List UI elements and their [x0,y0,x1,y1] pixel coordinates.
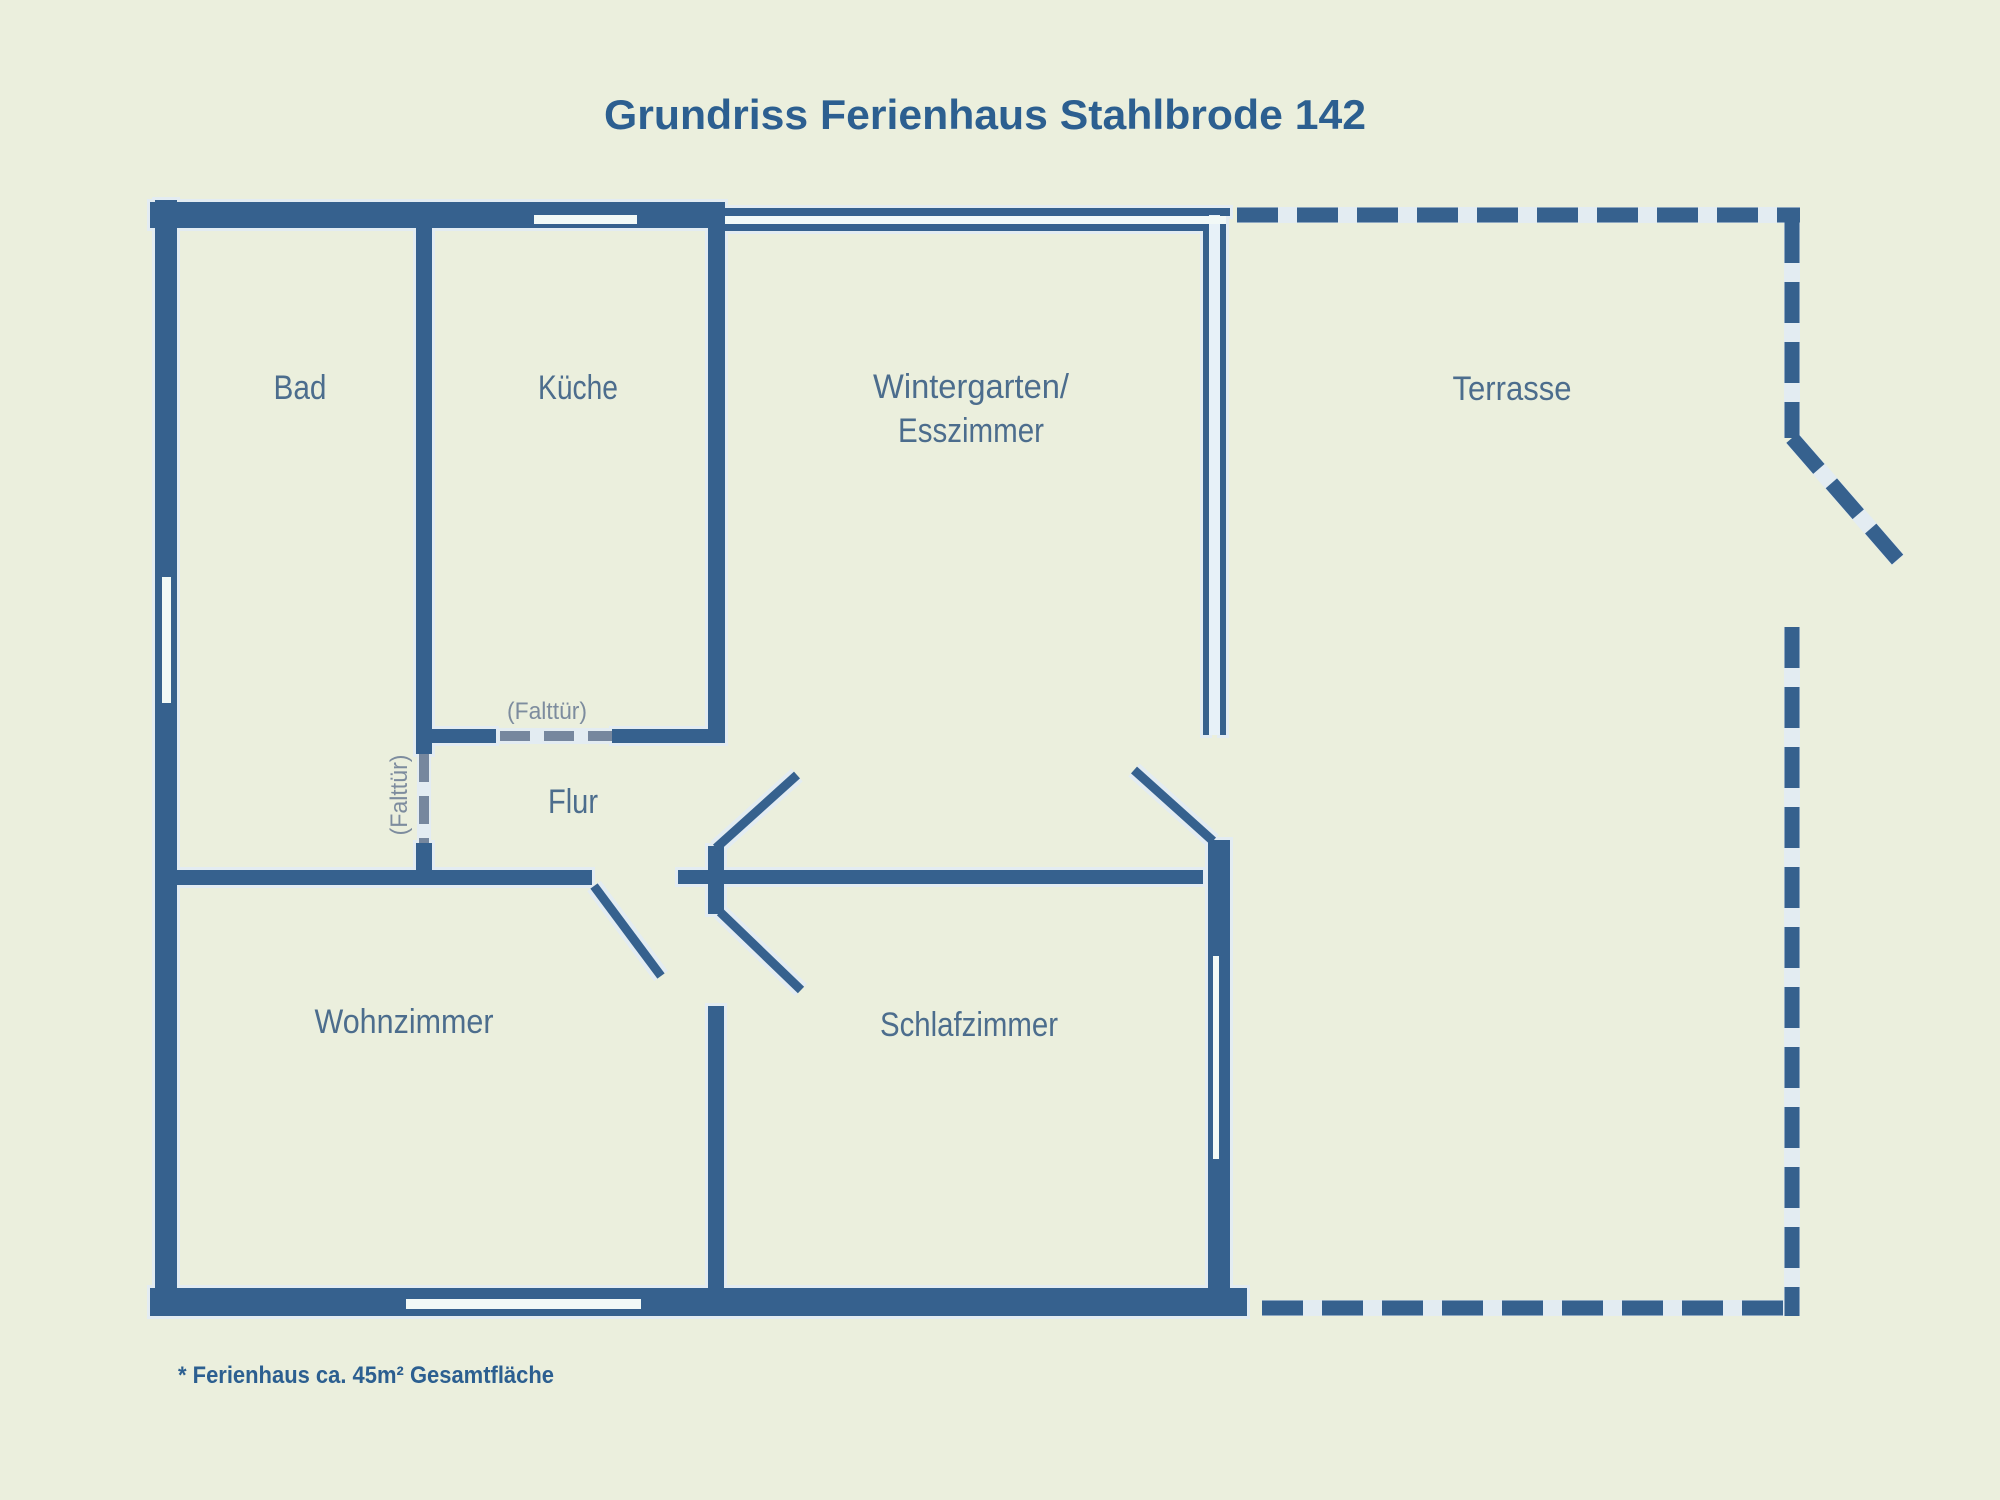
svg-text:Schlafzimmer: Schlafzimmer [880,1006,1058,1044]
svg-text:Wintergarten/: Wintergarten/ [873,368,1070,406]
svg-text:Küche: Küche [538,369,618,407]
svg-text:* Ferienhaus ca. 45m² Gesamtfl: * Ferienhaus ca. 45m² Gesamtfläche [178,1362,554,1389]
svg-text:Esszimmer: Esszimmer [898,412,1044,450]
svg-text:(Falttür): (Falttür) [386,755,413,836]
svg-text:Grundriss Ferienhaus Stahlbrod: Grundriss Ferienhaus Stahlbrode 142 [604,91,1366,138]
svg-text:Flur: Flur [548,783,598,821]
svg-text:Wohnzimmer: Wohnzimmer [315,1003,494,1041]
svg-text:Bad: Bad [274,369,327,407]
svg-text:(Falttür): (Falttür) [507,698,587,725]
svg-text:Terrasse: Terrasse [1453,370,1572,408]
